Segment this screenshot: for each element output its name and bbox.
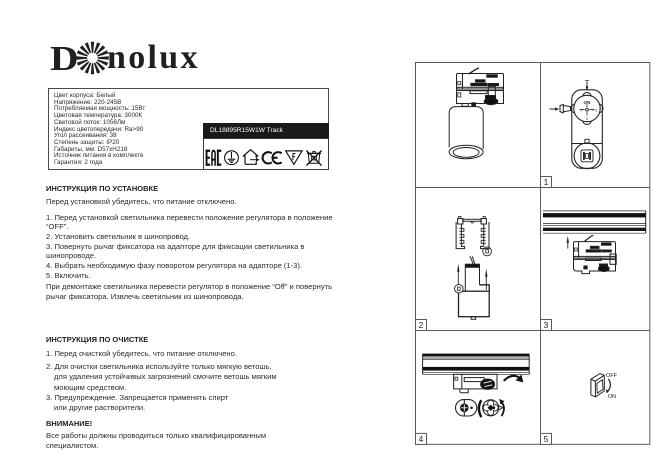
svg-text:4: 4 <box>419 434 424 444</box>
svg-text:ON: ON <box>608 394 616 400</box>
svg-text:ON: ON <box>584 100 592 105</box>
svg-text:2: 2 <box>419 320 424 330</box>
svg-text:3: 3 <box>586 117 588 121</box>
svg-text:3: 3 <box>544 320 549 330</box>
svg-text:1: 1 <box>544 177 549 187</box>
svg-text:2: 2 <box>595 108 597 112</box>
svg-text:OFF: OFF <box>606 373 618 379</box>
svg-text:5: 5 <box>544 434 549 444</box>
